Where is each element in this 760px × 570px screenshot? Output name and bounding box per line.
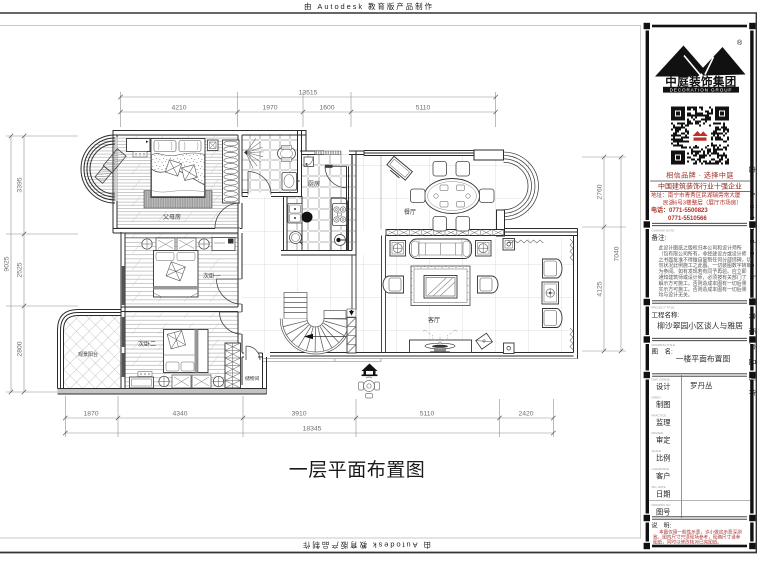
svg-text:13515: 13515 [299, 90, 318, 97]
svg-text:父母房: 父母房 [163, 213, 181, 221]
svg-text:5110: 5110 [416, 105, 431, 112]
svg-text:勿状况此例施工之此图。一切装图数字转审: 勿状况此例施工之此图。一切装图数字转审 [659, 262, 752, 269]
svg-text:DREIN: DREIN [652, 395, 661, 399]
svg-text:2525: 2525 [17, 262, 24, 277]
svg-text:（包有限公司所有，非经建设方或设计师: （包有限公司所有，非经建设方或设计师 [659, 250, 747, 257]
svg-text:1600: 1600 [319, 105, 334, 112]
svg-text:罗丹丛: 罗丹丛 [690, 380, 713, 390]
svg-text:厨房: 厨房 [308, 180, 320, 188]
svg-text:4125: 4125 [597, 281, 604, 296]
svg-text:日期: 日期 [656, 489, 670, 498]
svg-text:餐厅: 餐厅 [404, 208, 416, 216]
svg-text:设计: 设计 [656, 382, 670, 391]
svg-text:图纸，同时以修改核对已完图纸。: 图纸，同时以修改核对已完图纸。 [653, 539, 722, 546]
svg-text:PROJECT TITLE: PROJECT TITLE [652, 306, 675, 310]
svg-text:审定: 审定 [656, 436, 670, 445]
svg-text:一楼平面布置图: 一楼平面布置图 [676, 354, 731, 364]
svg-text:观景阳台: 观景阳台 [78, 351, 98, 358]
svg-text:图号: 图号 [656, 507, 670, 516]
svg-text:一层平面布置图: 一层平面布置图 [289, 459, 426, 481]
svg-text:由 Autodesk 教育版产品制作: 由 Autodesk 教育版产品制作 [303, 541, 432, 551]
svg-text:DECORATION GROUP: DECORATION GROUP [670, 88, 733, 93]
svg-text:5110: 5110 [420, 411, 435, 418]
svg-text:CLEARANCE: CLEARANCE [652, 467, 670, 471]
svg-text:2760: 2760 [597, 184, 604, 199]
svg-text:相信品牌 · 选择中庭: 相信品牌 · 选择中庭 [666, 171, 734, 180]
svg-text:1970: 1970 [262, 105, 277, 112]
svg-text:3395: 3395 [17, 177, 24, 192]
svg-text:7040: 7040 [614, 246, 621, 261]
svg-text:图 名:: 图 名: [652, 347, 674, 356]
svg-text:解示方可施工。否则造成本图有一切后果: 解示方可施工。否则造成本图有一切后果 [659, 280, 747, 287]
svg-text:4340: 4340 [172, 411, 187, 418]
svg-text:由 Autodesk 教育版产品制作: 由 Autodesk 教育版产品制作 [304, 1, 433, 11]
svg-text:0771-5510566: 0771-5510566 [668, 216, 707, 222]
svg-text:DRAWING TITLE: DRAWING TITLE [652, 343, 675, 347]
svg-text:2420: 2420 [518, 411, 533, 418]
svg-text:中国建筑装饰行业十强企业: 中国建筑装饰行业十强企业 [658, 182, 742, 191]
svg-text:此设计图纸之版权归本公司和设计师所: 此设计图纸之版权归本公司和设计师所 [659, 245, 742, 252]
svg-text:9025: 9025 [4, 256, 11, 271]
svg-text:之书面批准不得擅自复制任何分部缔碑，切: 之书面批准不得擅自复制任何分部缔碑，切 [659, 256, 752, 263]
svg-text:均与设计无关。: 均与设计无关。 [659, 292, 693, 299]
svg-text:4210: 4210 [171, 105, 186, 112]
svg-text:制图: 制图 [656, 400, 670, 409]
svg-text:®: ® [737, 39, 743, 47]
svg-text:为参阅。如有发现若有同予再验。应立即: 为参阅。如有发现若有同予再验。应立即 [659, 268, 747, 275]
svg-text:PRACTICE: PRACTICE [652, 413, 667, 417]
svg-text:实示方可施工。否则造成本图有一切后果: 实示方可施工。否则造成本图有一切后果 [659, 286, 747, 293]
svg-text:客厅: 客厅 [428, 316, 440, 324]
svg-text:3910: 3910 [291, 411, 306, 418]
svg-text:REVIEW: REVIEW [652, 431, 664, 435]
svg-text:次卧一: 次卧一 [203, 272, 221, 280]
svg-text:比例: 比例 [656, 454, 670, 463]
svg-text:民湖6号3楼整层（展厅市场房）: 民湖6号3楼整层（展厅市场房） [663, 199, 742, 207]
svg-text:18345: 18345 [303, 426, 322, 433]
svg-text:电话：0771-5500823: 电话：0771-5500823 [651, 206, 708, 214]
svg-text:储物间: 储物间 [245, 375, 260, 382]
svg-text:1870: 1870 [83, 411, 98, 418]
svg-text:柳沙翠园小区谈人与雅居: 柳沙翠园小区谈人与雅居 [657, 321, 743, 331]
svg-text:说 明:: 说 明: [652, 522, 672, 530]
svg-text:备注:: 备注: [652, 233, 667, 242]
svg-text:DRAWING NO: DRAWING NO [652, 503, 672, 507]
svg-text:中庭装饰集团: 中庭装饰集团 [665, 75, 736, 89]
svg-text:DWG GRADE: DWG GRADE [652, 378, 670, 382]
svg-text:SIG. DATE: SIG. DATE [652, 485, 666, 489]
svg-text:次卧二: 次卧二 [138, 340, 156, 348]
svg-text:2800: 2800 [17, 341, 24, 356]
svg-text:地址：南宁市青秀区民湖瑞旁常大厦: 地址：南宁市青秀区民湖瑞旁常大厦 [651, 191, 741, 199]
svg-text:监理: 监理 [656, 418, 670, 427]
svg-text:工程名称:: 工程名称: [652, 310, 680, 319]
svg-text:SCALE: SCALE [652, 449, 662, 453]
svg-text:通知建筑师或设计师，必须按有关部门了: 通知建筑师或设计师，必须按有关部门了 [659, 274, 747, 281]
svg-text:GANGWK NOTE: GANGWK NOTE [652, 229, 675, 233]
svg-text:客户: 客户 [656, 472, 670, 481]
